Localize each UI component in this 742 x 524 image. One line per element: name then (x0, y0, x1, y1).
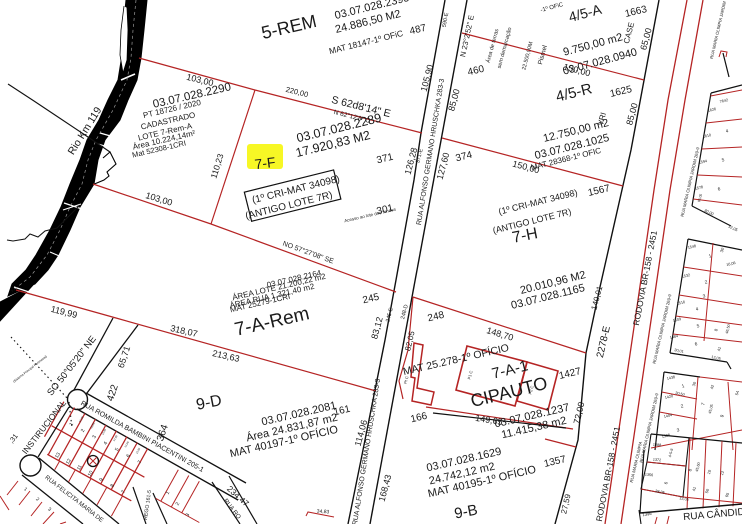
svg-text:1372: 1372 (653, 458, 662, 463)
svg-text:34,83: 34,83 (317, 508, 330, 515)
svg-text:7-F: 7-F (254, 154, 277, 172)
svg-text:1388: 1388 (653, 443, 662, 448)
svg-text:1356: 1356 (645, 473, 654, 478)
